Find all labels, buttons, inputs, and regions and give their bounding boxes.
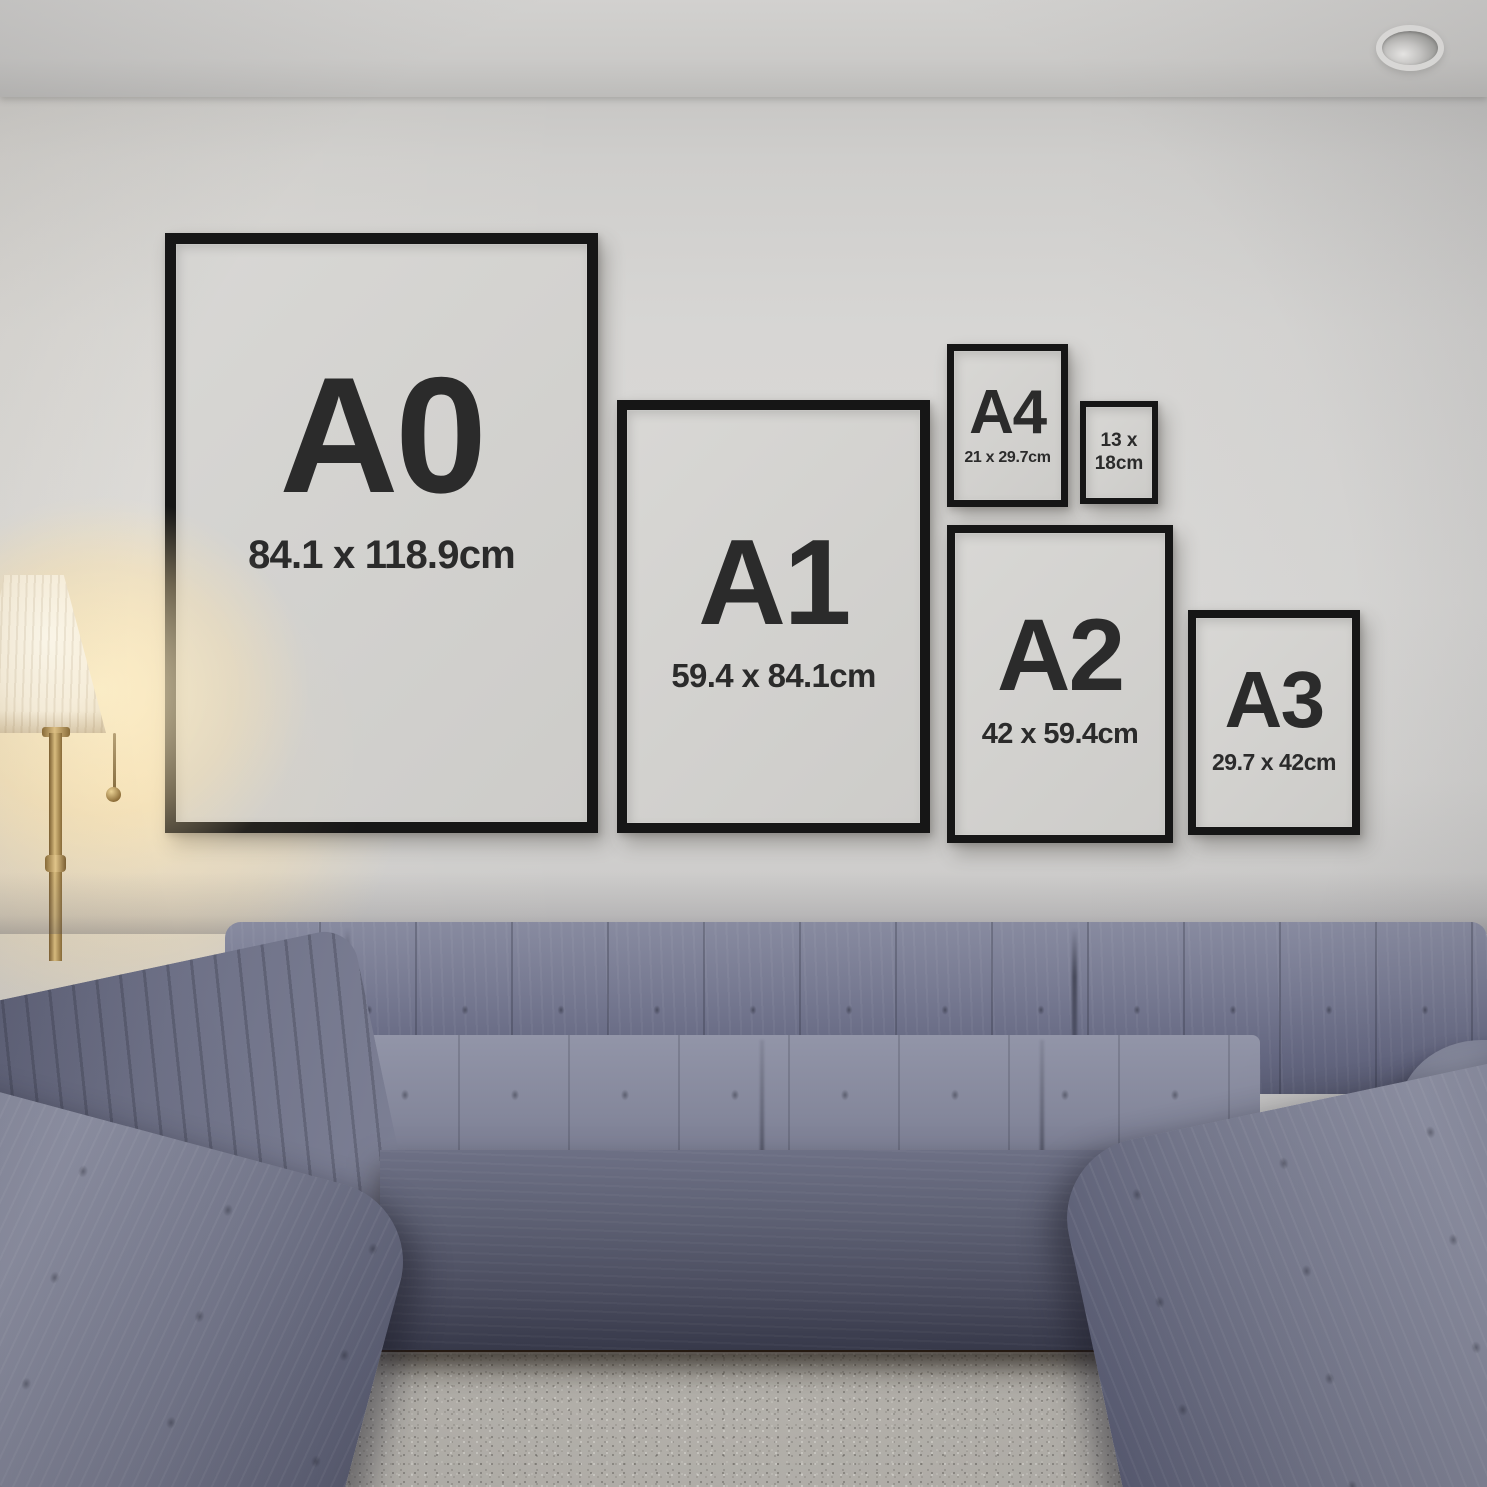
lamp-pole-ring (45, 855, 66, 872)
ceiling (0, 0, 1487, 97)
lamp-pull-chain (113, 733, 116, 790)
frame-a2: A2 42 x 59.4cm (947, 525, 1173, 843)
poster-a2-size: 42 x 59.4cm (982, 718, 1138, 751)
frame-a4: A4 21 x 29.7cm (947, 344, 1068, 507)
poster-a3: A3 29.7 x 42cm (1196, 618, 1352, 827)
poster-a3-label: A3 (1224, 663, 1323, 737)
poster-a4: A4 21 x 29.7cm (954, 351, 1061, 500)
poster-a1-size: 59.4 x 84.1cm (671, 657, 875, 695)
poster-13x18-line2: 18cm (1095, 453, 1144, 475)
poster-a4-size: 21 x 29.7cm (964, 449, 1050, 467)
lamp-pull-chain-ball (106, 787, 121, 802)
poster-a1-label: A1 (698, 526, 849, 638)
poster-13x18-line1: 13 x (1101, 430, 1138, 452)
poster-a0-label: A0 (279, 360, 483, 512)
poster-a4-label: A4 (969, 384, 1046, 441)
poster-a2-label: A2 (997, 609, 1123, 703)
frame-a1: A1 59.4 x 84.1cm (617, 400, 930, 833)
living-room-scene: A0 84.1 x 118.9cm A1 59.4 x 84.1cm A4 21… (0, 0, 1487, 1487)
poster-a3-size: 29.7 x 42cm (1212, 749, 1336, 776)
poster-a2: A2 42 x 59.4cm (955, 533, 1165, 835)
recessed-ceiling-light (1376, 25, 1444, 71)
frame-a3: A3 29.7 x 42cm (1188, 610, 1360, 835)
frame-13x18: 13 x 18cm (1080, 401, 1158, 504)
poster-a1: A1 59.4 x 84.1cm (627, 410, 920, 823)
sofa-front-panel (380, 1150, 1165, 1350)
poster-13x18: 13 x 18cm (1086, 407, 1152, 498)
